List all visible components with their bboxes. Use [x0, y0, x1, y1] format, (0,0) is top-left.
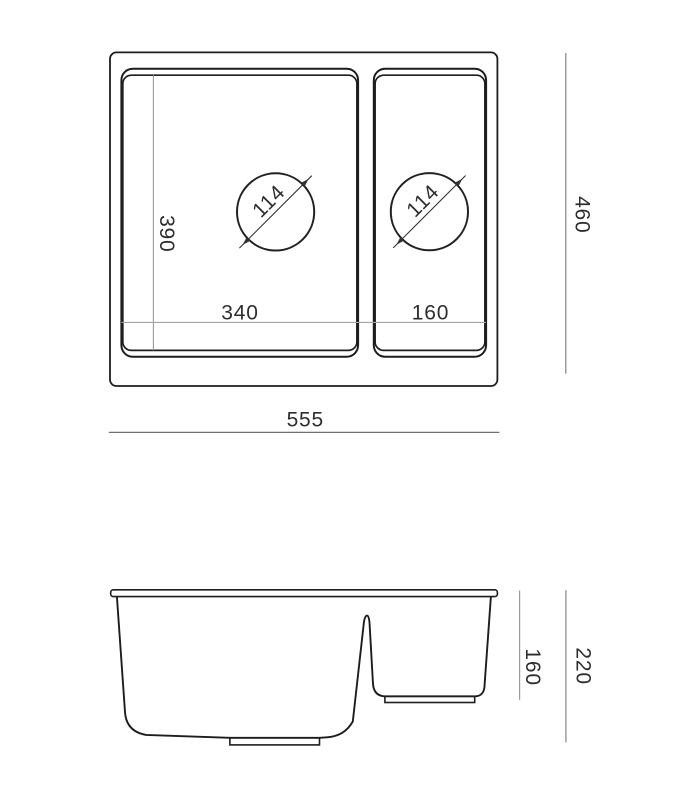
svg-text:220: 220 — [572, 647, 595, 684]
svg-text:340: 340 — [221, 301, 258, 324]
svg-text:114: 114 — [248, 181, 290, 223]
svg-text:160: 160 — [521, 648, 544, 685]
svg-text:390: 390 — [155, 215, 178, 252]
svg-text:555: 555 — [287, 408, 324, 431]
svg-text:460: 460 — [570, 196, 593, 233]
svg-text:160: 160 — [412, 301, 449, 324]
svg-text:114: 114 — [402, 180, 444, 222]
